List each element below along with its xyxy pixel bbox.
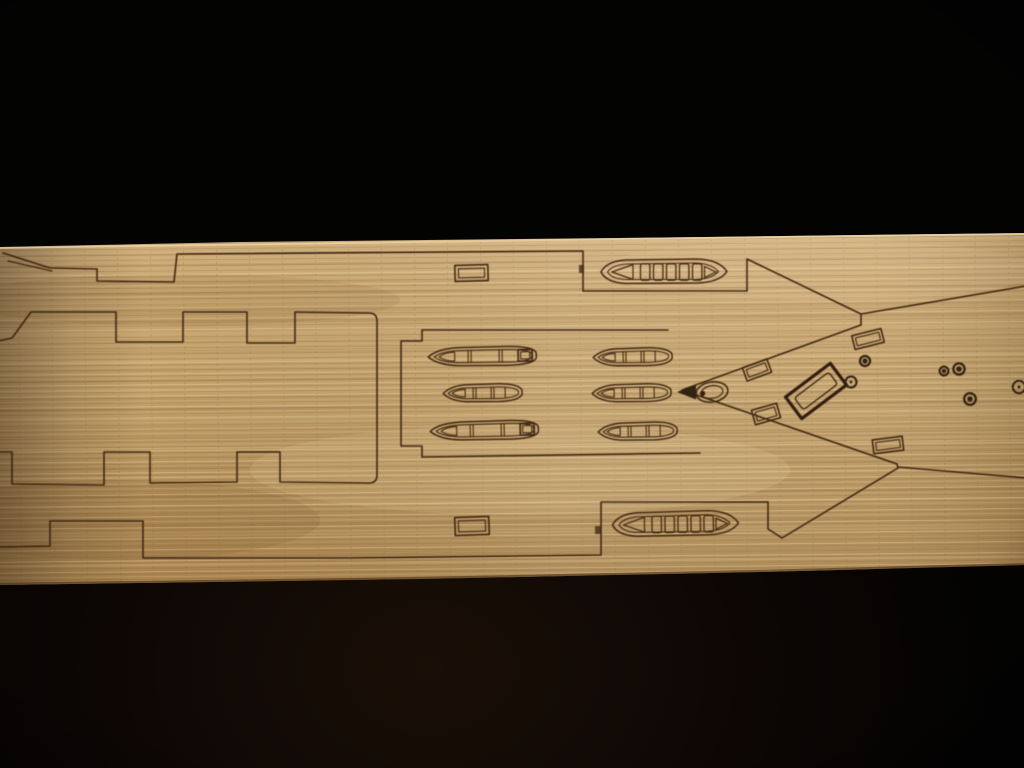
scene-svg: Photograph of a laser-engraved wooden mo… xyxy=(0,0,1024,768)
photo-canvas: A long strip of light tan wood veneer cr… xyxy=(0,0,1024,768)
vignette-overlay xyxy=(0,0,1024,768)
